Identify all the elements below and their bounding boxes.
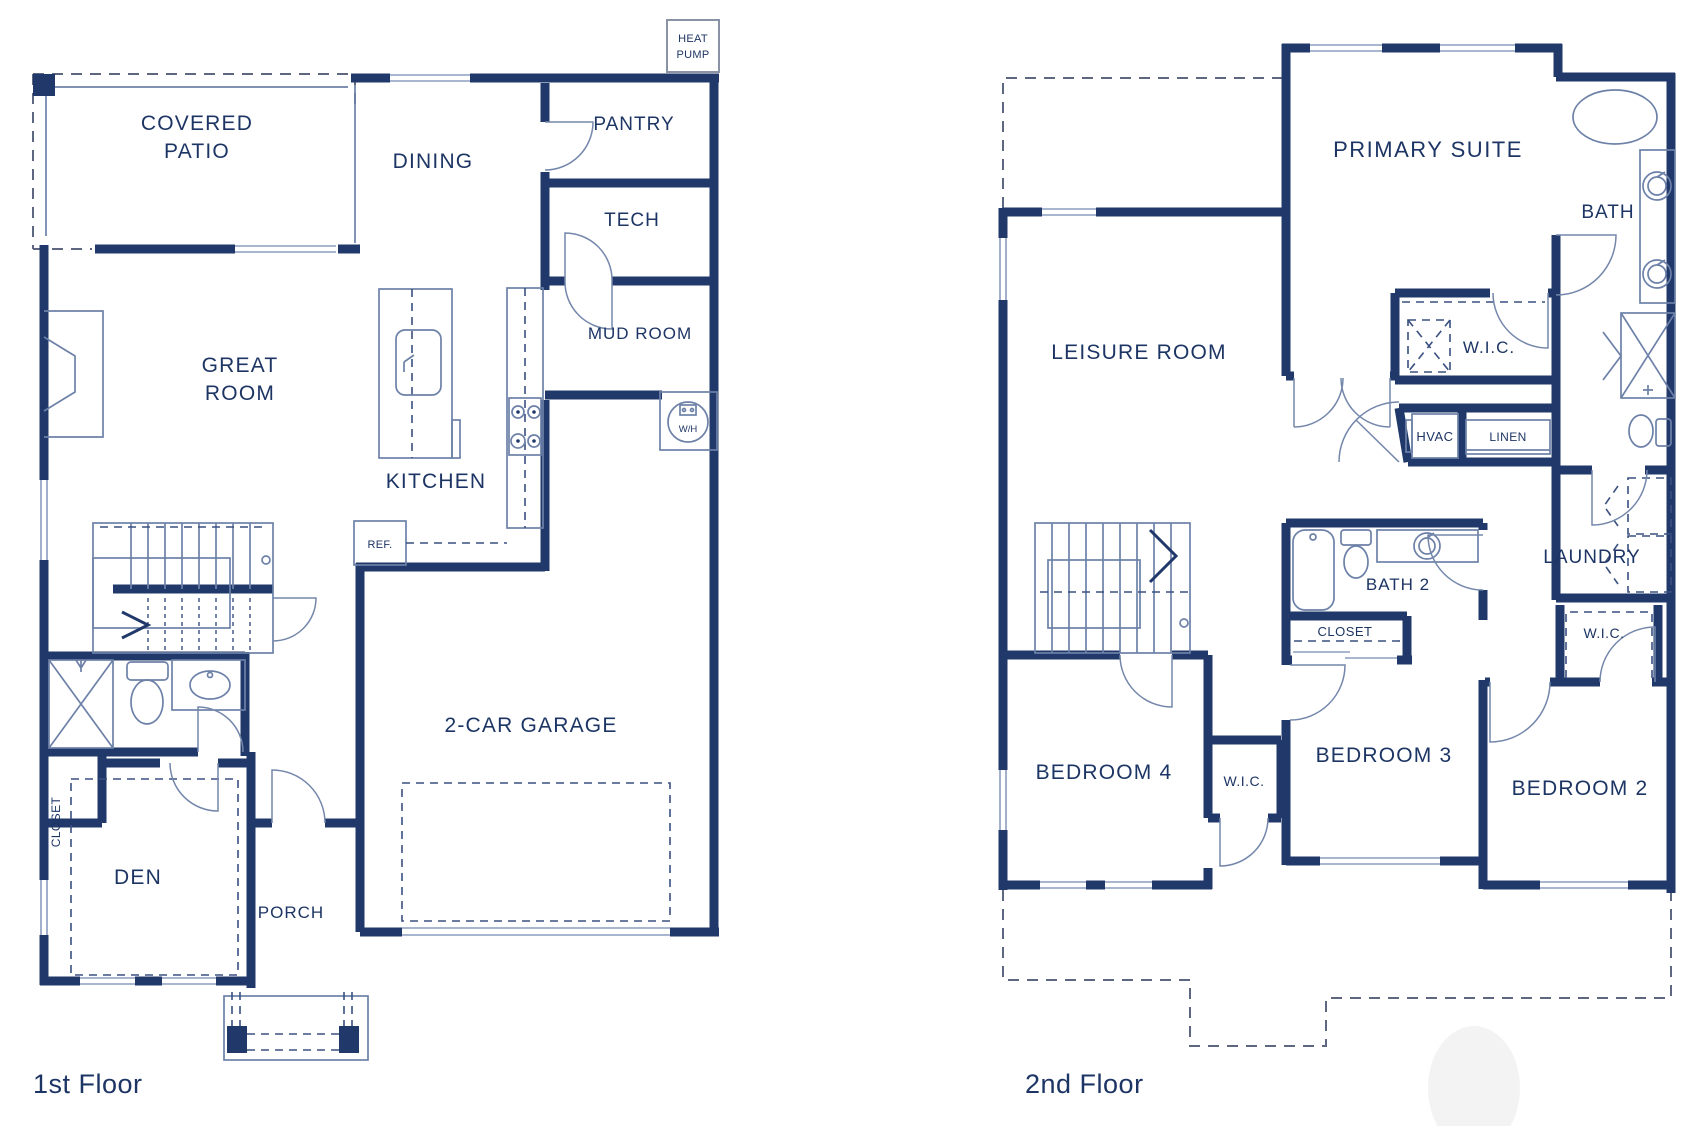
watermark [1428, 1026, 1520, 1126]
room-label-bath: BATH [1581, 202, 1634, 223]
bath2-fixtures [1293, 530, 1478, 610]
primary-bath [1573, 90, 1675, 447]
washer-dryer [1604, 478, 1671, 592]
roof-outline [1003, 890, 1671, 1046]
room-label-pantry: PANTRY [593, 114, 674, 135]
room-label-mud-room: MUD ROOM [588, 324, 692, 343]
room-label-primary-suite: PRIMARY SUITE [1333, 137, 1523, 162]
newel-post [262, 556, 270, 564]
porch-post [227, 1026, 247, 1053]
room-label-den: DEN [114, 866, 162, 889]
label-ref: REF. [367, 539, 392, 551]
room-label-wic-bedroom2: W.I.C. [1583, 625, 1624, 641]
floor2-title: 2nd Floor [1025, 1069, 1144, 1099]
room-label-bedroom4: BEDROOM 4 [1036, 761, 1173, 784]
second-floor-plan: PRIMARY SUITE BATH LEISURE ROOM W.I.C. H… [1000, 44, 1675, 1126]
room-label-closet-f1: CLOSET [49, 797, 63, 848]
kitchen-sink-icon [396, 330, 441, 395]
floorplan-canvas: COVERED PATIO DINING PANTRY TECH MUD ROO… [0, 0, 1704, 1126]
room-label-hvac: HVAC [1416, 429, 1453, 444]
room-label-covered-patio: COVERED [141, 112, 253, 135]
water-heater-icon [660, 392, 717, 450]
label-water-heater: W/H [679, 424, 698, 435]
newel-post [1180, 619, 1188, 627]
closet-sliding-doors [1293, 641, 1400, 658]
room-label-leisure-room: LEISURE ROOM [1051, 341, 1226, 364]
room-label-bedroom3: BEDROOM 3 [1316, 744, 1453, 767]
first-floor-plan: COVERED PATIO DINING PANTRY TECH MUD ROO… [33, 20, 719, 1099]
room-label-dining: DINING [393, 150, 474, 173]
powder-bath [49, 660, 245, 748]
stair-direction-arrow [122, 612, 148, 638]
room-label-garage: 2-CAR GARAGE [444, 714, 617, 737]
label-heat-pump: HEAT [678, 33, 708, 45]
room-label-great-room: GREAT [202, 354, 279, 377]
floor1-title: 1st Floor [33, 1069, 143, 1099]
room-label-great-room-2: ROOM [205, 382, 275, 405]
room-label-bath2: BATH 2 [1366, 575, 1430, 594]
room-label-wic-bedroom4: W.I.C. [1223, 773, 1264, 789]
staircase-second-floor [1035, 523, 1190, 653]
porch-post [339, 1026, 359, 1053]
bathtub-icon [1573, 90, 1657, 144]
room-label-covered-patio-2: PATIO [164, 140, 230, 163]
room-label-closet-f2: CLOSET [1317, 624, 1372, 639]
primary-wic [1402, 302, 1545, 372]
room-label-tech: TECH [604, 210, 660, 231]
room-label-kitchen: KITCHEN [386, 470, 487, 493]
room-label-laundry: LAUNDRY [1543, 547, 1640, 568]
sink-icon [172, 660, 245, 710]
porch-stoop [224, 992, 368, 1060]
garage-door [402, 783, 670, 921]
label-heat-pump-2: PUMP [677, 49, 710, 61]
fireplace-bay [44, 311, 103, 437]
room-label-porch: PORCH [258, 903, 324, 922]
toilet-icon [127, 662, 168, 724]
floorplan-page: COVERED PATIO DINING PANTRY TECH MUD ROO… [0, 0, 1704, 1126]
patio-post [33, 74, 55, 96]
room-label-wic-primary: W.I.C. [1463, 338, 1515, 357]
kitchen-island [379, 289, 460, 458]
toilet-icon [1341, 530, 1371, 578]
heat-pump-unit [667, 20, 719, 72]
shower-icon [1603, 313, 1675, 398]
room-label-bedroom2: BEDROOM 2 [1512, 777, 1649, 800]
bathtub-icon [1293, 530, 1334, 610]
open-below-outline [1003, 78, 1286, 208]
room-label-linen: LINEN [1489, 430, 1526, 444]
shower-head-icon [76, 660, 86, 672]
wic-bedroom2-shelves [1566, 612, 1652, 678]
kitchen-counter [507, 288, 543, 528]
toilet-icon [1629, 415, 1671, 447]
